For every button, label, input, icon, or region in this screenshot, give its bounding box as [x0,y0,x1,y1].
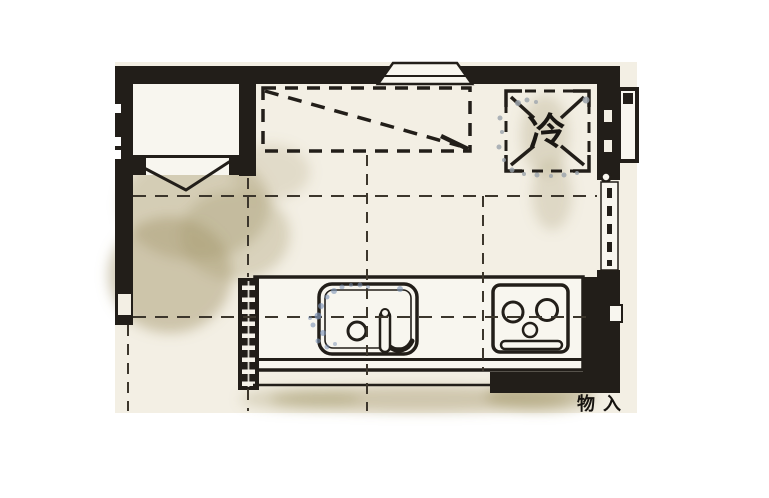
top-wall [115,66,620,84]
bottom-wall-band [490,372,620,393]
grill-bar [501,341,562,349]
burner-small [523,323,537,337]
door-jamb-left [133,158,146,175]
closet-label: 物入 [577,393,629,415]
floorplan-drawing: 冷 [0,0,769,498]
right-wall-upper [597,84,620,180]
door-jamb-right [229,158,242,175]
refrigerator-label: 冷 [526,108,568,155]
burner-left [503,302,523,322]
adjacent-room-box [619,89,637,161]
door-pivot-knob [602,173,611,182]
alcove-recess [133,84,239,175]
stove [493,285,568,352]
wall-nub [609,305,622,322]
wall-vent-window [378,63,472,84]
sink-drain [348,322,366,340]
kitchen-floorplan-canvas: 冷 [0,0,769,498]
faucet-knob [381,309,389,317]
